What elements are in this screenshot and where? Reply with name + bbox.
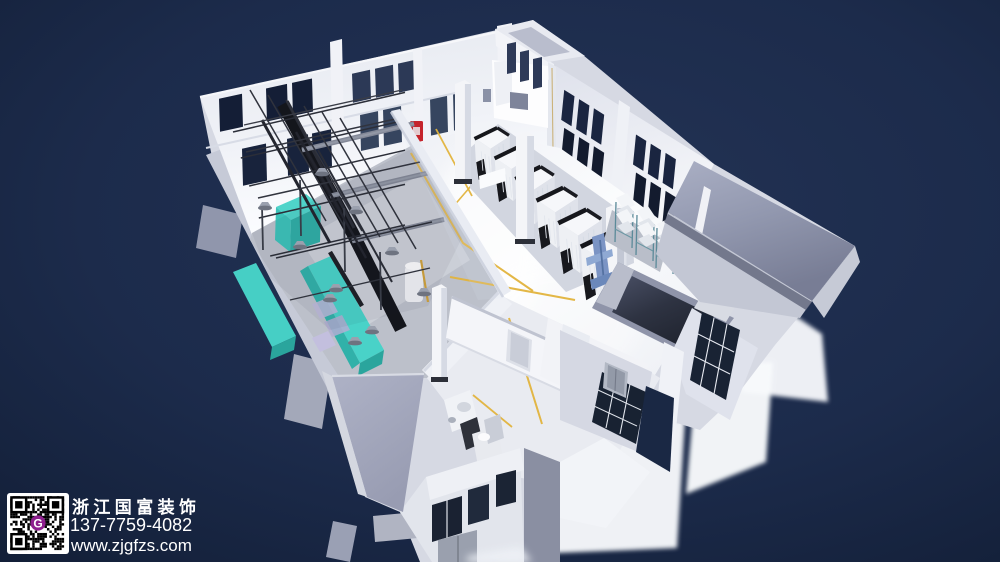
svg-text:G: G [33,517,42,531]
